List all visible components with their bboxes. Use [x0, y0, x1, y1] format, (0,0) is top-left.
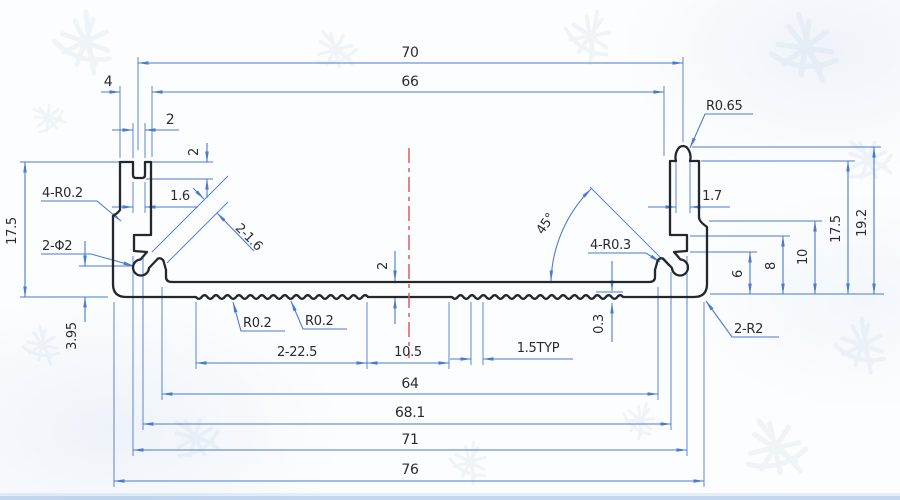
leader-4-r0-2 — [41, 201, 121, 221]
leader-4-r0-3 — [588, 253, 660, 262]
angle-45-arc — [551, 189, 591, 281]
dim-1-7: 1.7 — [702, 189, 722, 204]
dim-70: 70 — [401, 45, 418, 61]
label-r0-2-a: R0.2 — [243, 316, 272, 331]
label-2-r2: 2-R2 — [734, 322, 763, 337]
dim-1-5typ: 1.5TYP — [517, 341, 560, 356]
dim-76: 76 — [401, 462, 419, 478]
dim-3-95: 3.95 — [65, 322, 80, 350]
extension-lines — [20, 57, 884, 487]
dim-10: 10 — [796, 249, 811, 265]
dim-17-5-right: 17.5 — [829, 215, 844, 243]
ext-line-diagonal — [167, 202, 228, 263]
dim-6: 6 — [731, 270, 746, 278]
dim-10-5: 10.5 — [394, 345, 422, 360]
dimension-lines — [20, 57, 884, 487]
label-r0-2-b: R0.2 — [305, 314, 334, 329]
dim-17-5-left: 17.5 — [5, 217, 20, 245]
leader-2-phi2 — [41, 254, 134, 266]
scan-edge-artifact-light — [0, 493, 900, 496]
dim-0-3: 0.3 — [592, 314, 607, 334]
scan-edge-artifact — [0, 496, 900, 500]
dim-2-plate: 2 — [376, 262, 391, 270]
dim-68-1: 68.1 — [395, 405, 425, 421]
construction-45-line — [590, 187, 669, 266]
dim-71: 71 — [401, 432, 418, 448]
label-2-phi2: 2-Φ2 — [42, 239, 72, 254]
label-4-r0-2: 4-R0.2 — [42, 186, 83, 201]
dim-19-2: 19.2 — [855, 209, 870, 237]
drawing-sheet: 70 66 4 2 2 1.6 R0.65 1.7 4-R0.2 2-Φ2 17… — [0, 0, 900, 500]
dim-slot-depth-2: 2 — [187, 148, 202, 156]
dim-wall-4: 4 — [104, 74, 113, 90]
dim-66: 66 — [401, 74, 419, 90]
dim-2-22-5: 2-22.5 — [277, 345, 317, 360]
dim-2-1-6-seg — [193, 188, 204, 199]
label-4-r0-3: 4-R0.3 — [590, 238, 631, 253]
watermark-layer — [21, 3, 898, 487]
leader-r0-65 — [690, 114, 753, 148]
dim-slot-width-2: 2 — [166, 112, 175, 128]
dim-1-6: 1.6 — [170, 189, 190, 204]
dim-45-deg: 45° — [534, 211, 559, 238]
profile-outline — [113, 146, 707, 299]
label-r0-65: R0.65 — [706, 99, 743, 114]
dim-8: 8 — [764, 262, 779, 270]
dimension-half-segments — [85, 92, 730, 359]
dim-64: 64 — [401, 376, 419, 392]
dim-2-1-6: 2-1.6 — [232, 221, 265, 254]
technical-drawing: 70 66 4 2 2 1.6 R0.65 1.7 4-R0.2 2-Φ2 17… — [0, 0, 900, 500]
